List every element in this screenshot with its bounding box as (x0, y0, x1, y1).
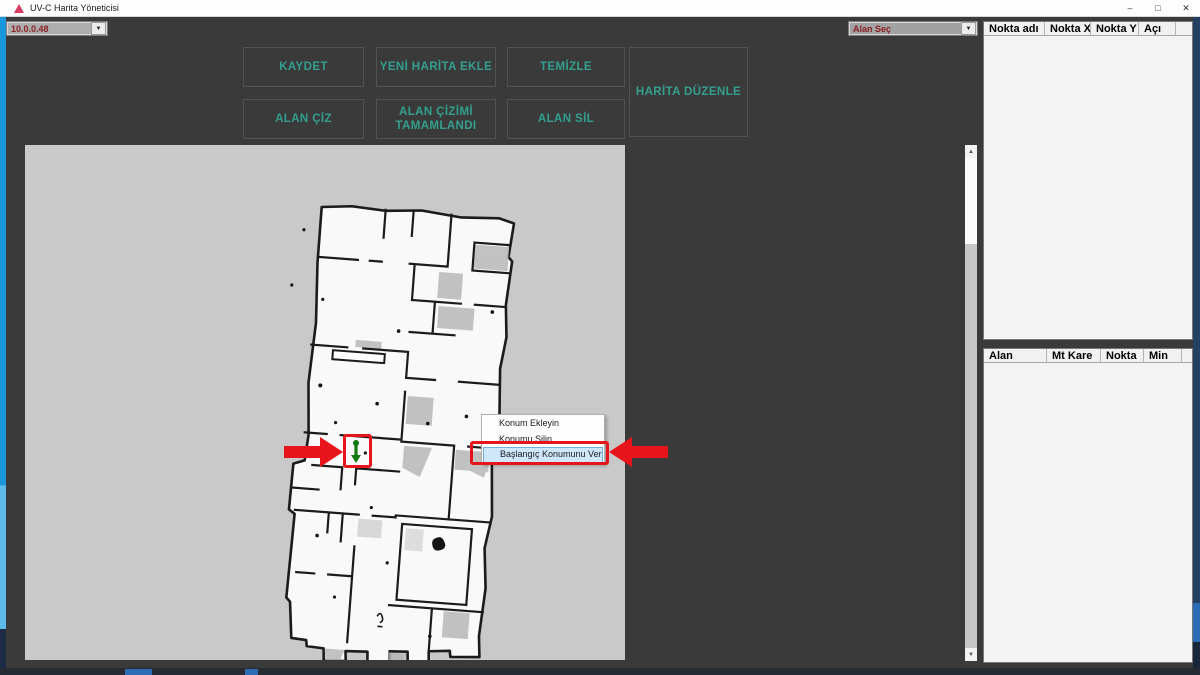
map-canvas[interactable] (25, 145, 625, 660)
column-nokta[interactable]: Nokta (1101, 349, 1144, 362)
areas-panel: Alan Mt Kare Nokta Min (983, 348, 1193, 663)
annotation-arrow-right (608, 436, 668, 468)
map-vertical-scrollbar[interactable]: ▲ ▼ (965, 145, 977, 661)
alan-sil-button[interactable]: ALAN SİL (507, 99, 625, 139)
alan-cizimi-tamamlandi-button[interactable]: ALAN ÇİZİMİ TAMAMLANDI (376, 99, 496, 139)
column-nokta-adi[interactable]: Nokta adı (984, 22, 1045, 35)
menu-highlight-box (470, 441, 609, 465)
scroll-down-icon[interactable]: ▼ (965, 648, 977, 661)
menu-item-konum-ekleyin[interactable]: Konum Ekleyin (482, 416, 604, 432)
title-bar: UV-C Harita Yöneticisi – □ ✕ (0, 0, 1200, 17)
column-alan[interactable]: Alan (984, 349, 1047, 362)
points-table-body[interactable] (984, 36, 1192, 339)
scroll-up-icon[interactable]: ▲ (965, 145, 977, 158)
ip-select-combobox[interactable]: 10.0.0.48 ▼ (6, 21, 108, 36)
column-nokta-x[interactable]: Nokta X (1045, 22, 1091, 35)
column-nokta-y[interactable]: Nokta Y (1091, 22, 1139, 35)
minimize-button[interactable]: – (1116, 0, 1144, 16)
window-title: UV-C Harita Yöneticisi (30, 3, 119, 13)
points-panel: Nokta adı Nokta X Nokta Y Açı (983, 21, 1193, 340)
ip-dropdown-arrow-icon[interactable]: ▼ (91, 22, 106, 35)
taskbar-icon[interactable] (245, 669, 258, 675)
marker-highlight-box (343, 434, 372, 468)
area-select-value: Alan Seç (849, 24, 961, 34)
ip-select-value: 10.0.0.48 (7, 24, 91, 34)
kaydet-button[interactable]: KAYDET (243, 47, 364, 87)
areas-table-body[interactable] (984, 363, 1192, 662)
window-controls: – □ ✕ (1116, 0, 1200, 16)
close-button[interactable]: ✕ (1172, 0, 1200, 16)
harita-duzenle-button[interactable]: HARİTA DÜZENLE (629, 47, 748, 137)
scrollbar-thumb[interactable] (965, 158, 977, 244)
temizle-button[interactable]: TEMİZLE (507, 47, 625, 87)
app-logo-icon (14, 4, 24, 13)
column-min[interactable]: Min (1144, 349, 1182, 362)
taskbar-strip (0, 668, 1200, 675)
desktop-edge-left (0, 17, 6, 668)
annotation-arrow-left (284, 436, 344, 468)
maximize-button[interactable]: □ (1144, 0, 1172, 16)
alan-ciz-button[interactable]: ALAN ÇİZ (243, 99, 364, 139)
column-stub (1176, 22, 1192, 35)
area-dropdown-arrow-icon[interactable]: ▼ (961, 22, 976, 35)
points-table-header: Nokta adı Nokta X Nokta Y Açı (984, 22, 1192, 36)
areas-table-header: Alan Mt Kare Nokta Min (984, 349, 1192, 363)
taskbar-icon[interactable] (125, 669, 152, 675)
column-stub (1182, 349, 1192, 362)
column-aci[interactable]: Açı (1139, 22, 1176, 35)
yeni-harita-ekle-button[interactable]: YENİ HARİTA EKLE (376, 47, 496, 87)
column-mt-kare[interactable]: Mt Kare (1047, 349, 1101, 362)
floorplan-map (25, 145, 625, 660)
desktop-edge-right (1193, 17, 1200, 668)
area-select-combobox[interactable]: Alan Seç ▼ (848, 21, 978, 36)
